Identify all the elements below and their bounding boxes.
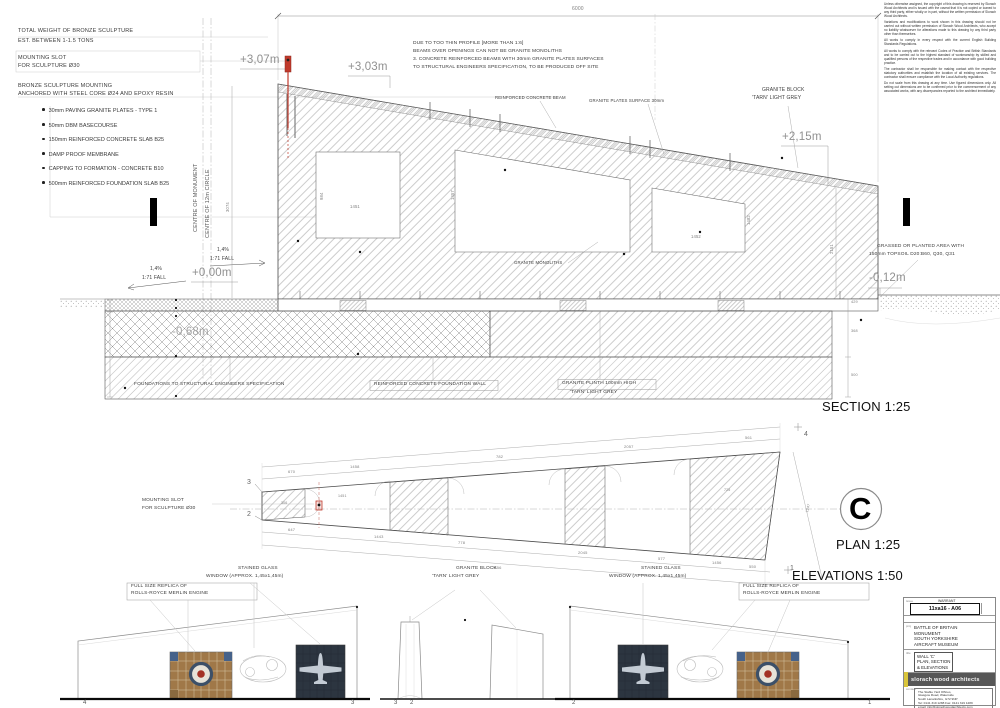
elev-mid-block-2: 'TARN' LIGHT GREY <box>432 575 479 580</box>
centreline-label-circle: CENTRE OF 12m CIRCLE <box>206 169 212 238</box>
plan-dim-782: 782 <box>496 455 503 459</box>
elev-left-replica-1: FULL SIZE REPLICA OF <box>131 585 187 590</box>
level-minus-0-12: -0,12m <box>869 273 906 285</box>
plan-mounting-2: FOR SCULPTURE Ø30 <box>142 507 195 512</box>
note-granite-block-1: GRANITE BLOCK <box>762 88 805 93</box>
elev-right-window-2: WINDOW (APPROX. 1,45x1,45m) <box>609 575 686 580</box>
elev-grid-4: 4 <box>83 700 87 706</box>
plan-dim-561: 561 <box>745 436 752 440</box>
plan-dim-2045: 2045 <box>578 551 588 555</box>
plan-dim-725: 725 <box>724 489 730 493</box>
level-plus-2-15: +2,15m <box>782 132 822 144</box>
note-plinth-2: 'TARN' LIGHT GREY <box>570 391 617 396</box>
plan-dim-670: 670 <box>288 470 295 474</box>
project-field: proj BATTLE OF BRITAINMONUMENTSOUTH YORK… <box>904 623 995 650</box>
plan-grid-2: 2 <box>247 511 251 518</box>
fall-left-pct: 1,4% <box>150 267 162 272</box>
project-field-label: proj <box>906 624 911 628</box>
drawing-sheet: TOTAL WEIGHT OF BRONZE SCULPTURE EST. BE… <box>0 0 1000 708</box>
revision-cell <box>981 603 994 614</box>
sheet-title-field: title WALL 'C'PLAN, SECTION& ELEVATIONS <box>904 650 995 673</box>
drawing-number: 11xa16 - A06 <box>910 603 980 615</box>
elev-grid-3b: 3 <box>394 700 398 706</box>
note-reinforced-beam: REINFORCED CONCRETE BEAM <box>495 96 566 100</box>
plan-dim-2057: 2057 <box>624 445 634 449</box>
plan-dim-1451: 1451 <box>338 495 347 499</box>
plan-dim-577: 577 <box>658 557 665 561</box>
fall-right-pct: 1,4% <box>217 248 229 253</box>
dim-500: 500 <box>851 374 858 378</box>
centreline-label-monument: CENTRE OF MONUMENT <box>194 164 200 232</box>
contact-field-label: contact <box>906 687 916 691</box>
elev-grid-2a: 2 <box>410 700 414 706</box>
title-block-issue-row: issue WARRANT 11xa16 - A06 <box>904 598 995 616</box>
dim-2151: 2151 <box>830 244 834 254</box>
firm-logo-band: slorach wood architects <box>904 673 995 686</box>
elev-left-replica-2: ROLLS-ROYCE MERLIN ENGINE <box>131 592 208 597</box>
note-granite-plates: GRANITE PLATES SURFACE 30mm <box>589 99 664 103</box>
elev-right-window-1: STAINED GLASS <box>641 567 681 572</box>
note-plinth-1: GRANITE PLINTH 100mm HIGH <box>562 382 636 387</box>
dim-1452: 1452 <box>691 235 701 239</box>
elev-grid-2b: 2 <box>572 700 576 706</box>
contact-field: contact The Stable Yard Offices,Glasgow … <box>904 686 995 708</box>
title-field-label: title <box>906 651 911 655</box>
plan-dim-1456: 1456 <box>712 561 722 565</box>
note-foundation-wall: REINFORCED CONCRETE FOUNDATION WALL <box>374 383 486 388</box>
elev-right-replica-1: FULL SIZE REPLICA OF <box>743 585 799 590</box>
sheet-title: WALL 'C'PLAN, SECTION& ELEVATIONS <box>914 652 953 672</box>
plan-dim-1458: 1458 <box>350 465 360 469</box>
fall-right-ratio: 1:71 FALL <box>210 257 234 262</box>
project-name-line: AIRCRAFT MUSEUM <box>914 642 993 648</box>
dim-6000: 6000 <box>572 7 584 12</box>
dim-1482: 1482 <box>747 215 751 225</box>
scale-section: SECTION 1:25 <box>822 400 911 413</box>
firm-name: slorach wood architects <box>911 677 980 683</box>
elev-mid-block-1: GRANITE BLOCK <box>456 567 497 572</box>
sheet-title-line: & ELEVATIONS <box>917 665 950 670</box>
level-plus-3-07: +3,07m <box>240 55 280 67</box>
plan-dim-550: 550 <box>749 565 756 569</box>
level-plus-3-03: +3,03m <box>348 62 388 74</box>
plan-dim-306: 306 <box>281 502 287 506</box>
note-foundations-spec: FOUNDATIONS TO STRUCTURAL ENGINEERS SPEC… <box>134 383 284 388</box>
level-zero: +0,00m <box>192 268 232 280</box>
project-name: BATTLE OF BRITAINMONUMENTSOUTH YORKSHIRE… <box>914 625 993 647</box>
wall-reference-letter: C <box>849 493 872 524</box>
elev-left-window-1: STAINED GLASS <box>238 567 278 572</box>
plan-dim-1247: 1247 <box>806 504 812 513</box>
plan-grid-4: 4 <box>804 431 808 438</box>
elev-right-replica-2: ROLLS-ROYCE MERLIN ENGINE <box>743 592 820 597</box>
note-granite-block-2: 'TARN' LIGHT GREY <box>752 96 801 101</box>
dim-1451: 1451 <box>350 205 360 209</box>
dim-3074: 3074 <box>226 202 230 212</box>
plan-dim-1443: 1443 <box>374 535 384 539</box>
firm-contact-details: The Stable Yard Offices,Glasgow Road, Wa… <box>914 688 993 708</box>
scale-elevations: ELEVATIONS 1:50 <box>792 569 903 582</box>
fall-left-ratio: 1:71 FALL <box>142 276 166 281</box>
plan-mounting-1: MOUNTING SLOT <box>142 499 184 504</box>
title-block: issue WARRANT 11xa16 - A06 proj BATTLE O… <box>903 597 996 706</box>
logo-yellow-tab <box>904 672 908 687</box>
dim-984: 984 <box>320 193 324 200</box>
note-grassed-1: GRASSED OR PLANTED AREA WITH <box>877 245 964 250</box>
title-block-spacer-row <box>904 616 995 623</box>
level-minus-0-68: -0,68m <box>172 327 209 339</box>
dim-1457: 1457 <box>451 190 455 200</box>
dim-368: 368 <box>851 330 858 334</box>
scale-plan: PLAN 1:25 <box>836 538 900 551</box>
annotation-layer: REINFORCED CONCRETE BEAMGRANITE PLATES S… <box>0 0 1000 708</box>
note-grassed-2: 150mm TOPSOIL D20:B60, Q30, Q31 <box>869 253 955 258</box>
plan-dim-647: 647 <box>288 528 295 532</box>
plan-dim-778: 778 <box>458 541 465 545</box>
note-granite-monoliths: GRANITE MONOLITHS <box>514 261 562 265</box>
elev-grid-1: 1 <box>868 700 872 706</box>
elev-left-window-2: WINDOW (APPROX. 1,45x1,45m) <box>206 575 283 580</box>
dim-429: 429 <box>851 301 858 305</box>
plan-grid-3: 3 <box>247 479 251 486</box>
elev-grid-3a: 3 <box>351 700 355 706</box>
